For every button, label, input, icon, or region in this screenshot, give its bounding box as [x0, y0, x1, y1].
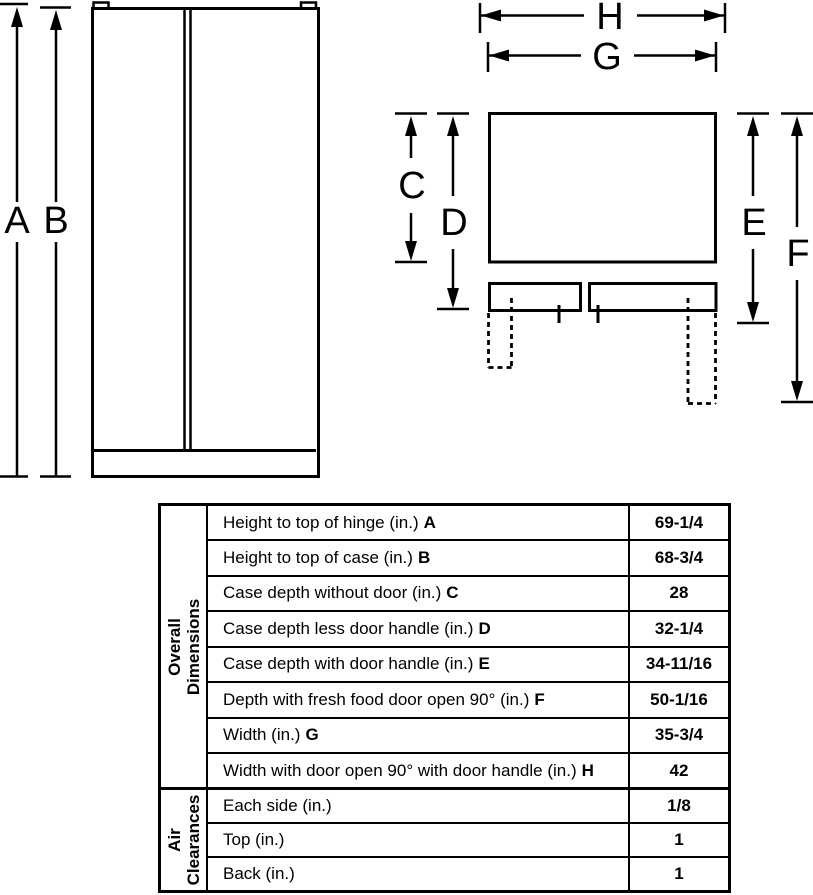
row-label: Width with door open 90° with door handl…	[207, 753, 629, 789]
table-row: Width (in.)G 35-3/4	[160, 718, 730, 754]
top-view-diagram: H G	[395, 0, 813, 404]
table-row: Width with door open 90° with door handl…	[160, 753, 730, 789]
dim-letter: D	[478, 619, 490, 638]
dim-B: B	[40, 8, 71, 478]
dim-letter: A	[424, 513, 436, 532]
freezer-door-top-outline	[490, 284, 581, 311]
row-label: Top (in.)	[207, 823, 629, 857]
dim-A-label: A	[4, 200, 30, 242]
table-row: Case depth without door (in.)C 28	[160, 576, 730, 612]
table-row: Case depth with door handle (in.)E 34-11…	[160, 647, 730, 683]
table-row: Case depth less door handle (in.)D 32-1/…	[160, 611, 730, 647]
row-label: Depth with fresh food door open 90° (in.…	[207, 682, 629, 718]
row-value: 1/8	[629, 789, 730, 823]
row-value: 50-1/16	[629, 682, 730, 718]
dim-letter: B	[418, 548, 430, 567]
row-label: Height to top of case (in.)B	[207, 540, 629, 576]
dim-B-label: B	[43, 200, 68, 242]
dim-D: D	[437, 114, 469, 310]
row-label: Case depth less door handle (in.)D	[207, 611, 629, 647]
dim-F: F	[781, 114, 813, 403]
dim-C-label: C	[398, 165, 425, 207]
row-value: 35-3/4	[629, 718, 730, 754]
dim-letter: G	[305, 725, 318, 744]
dim-D-arrow-up	[447, 116, 459, 136]
right-handle-open-outline	[688, 298, 716, 404]
dim-letter: F	[534, 690, 544, 709]
row-value: 32-1/4	[629, 611, 730, 647]
row-value: 68-3/4	[629, 540, 730, 576]
row-label: Width (in.)G	[207, 718, 629, 754]
row-value: 34-11/16	[629, 647, 730, 683]
table-row: Depth with fresh food door open 90° (in.…	[160, 682, 730, 718]
dim-F-label: F	[786, 233, 809, 275]
fridge-case-outline	[93, 9, 319, 477]
table-row: Top (in.) 1	[160, 823, 730, 857]
table-row: Height to top of case (in.)B 68-3/4	[160, 540, 730, 576]
vertical-section-label: Air Clearances	[165, 795, 203, 886]
dim-B-arrow-up	[50, 10, 62, 30]
dim-G: G	[488, 36, 716, 78]
row-value: 42	[629, 753, 730, 789]
section-header-overall-dimensions: Overall Dimensions	[160, 505, 208, 789]
dim-A: A	[0, 4, 30, 477]
dim-D-label: D	[440, 202, 467, 244]
dim-G-label: G	[592, 36, 622, 78]
row-label: Height to top of hinge (in.)A	[207, 505, 629, 541]
dim-C: C	[395, 114, 427, 263]
dimension-diagram: A B H	[0, 0, 813, 500]
dim-E: E	[737, 114, 769, 324]
front-view-diagram: A B	[0, 3, 319, 478]
table-row: Air Clearances Each side (in.) 1/8	[160, 789, 730, 823]
row-label: Case depth without door (in.)C	[207, 576, 629, 612]
row-value: 1	[629, 823, 730, 857]
dim-A-arrow-up	[11, 7, 23, 27]
dim-D-arrow-down	[447, 288, 459, 308]
row-label: Each side (in.)	[207, 789, 629, 823]
dim-F-arrow-up	[791, 116, 803, 136]
dim-letter: E	[478, 654, 489, 673]
table-row: Overall Dimensions Height to top of hing…	[160, 505, 730, 541]
fresh-food-door-top-outline	[590, 284, 717, 311]
dim-F-arrow-down	[791, 381, 803, 401]
row-value: 1	[629, 857, 730, 891]
dim-H: H	[480, 0, 725, 38]
row-label: Back (in.)	[207, 857, 629, 891]
dim-C-arrow-up	[405, 116, 417, 136]
dim-E-arrow-up	[747, 116, 759, 136]
row-label: Case depth with door handle (in.)E	[207, 647, 629, 683]
row-value: 69-1/4	[629, 505, 730, 541]
dimensions-table: Overall Dimensions Height to top of hing…	[158, 503, 731, 893]
section-header-air-clearances: Air Clearances	[160, 789, 208, 892]
dim-E-label: E	[741, 202, 766, 244]
dim-C-arrow-down	[405, 241, 417, 261]
dim-letter: H	[582, 761, 594, 780]
row-value: 28	[629, 576, 730, 612]
vertical-section-label: Overall Dimensions	[165, 598, 203, 694]
table-row: Back (in.) 1	[160, 857, 730, 891]
case-top-outline	[490, 114, 716, 263]
dim-E-arrow-down	[747, 302, 759, 322]
dim-letter: C	[446, 583, 458, 602]
refrigerator-spec-sheet: A B H	[0, 0, 813, 895]
dim-H-label: H	[596, 0, 623, 38]
